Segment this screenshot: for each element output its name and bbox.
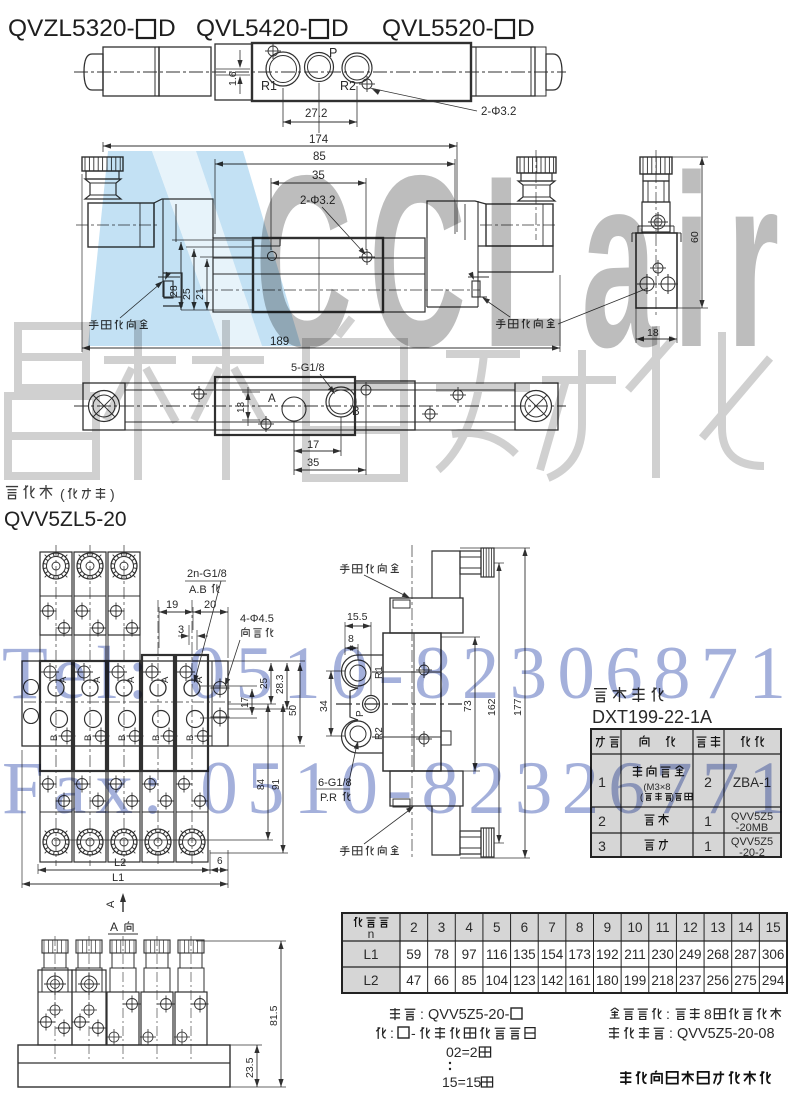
svg-text:189: 189 [270, 336, 289, 348]
svg-text:1.6: 1.6 [227, 71, 239, 86]
svg-text:1: 1 [704, 838, 712, 854]
svg-text:A: A [268, 393, 276, 405]
svg-text:2: 2 [410, 920, 418, 935]
svg-text:-: - [411, 1025, 416, 1041]
svg-text:50: 50 [288, 704, 299, 716]
svg-text:59: 59 [406, 947, 421, 962]
svg-text:174: 174 [309, 134, 329, 146]
svg-text:142: 142 [541, 973, 564, 988]
svg-text:P: P [329, 46, 337, 60]
svg-text:9: 9 [604, 920, 612, 935]
svg-text:A: A [110, 920, 118, 934]
svg-text:D: D [517, 15, 535, 42]
svg-text:2n-G1/8: 2n-G1/8 [187, 568, 227, 580]
svg-text:123: 123 [513, 973, 536, 988]
svg-text:10: 10 [627, 920, 642, 935]
svg-text:15.5: 15.5 [347, 611, 368, 623]
svg-text:QVL5420-: QVL5420- [196, 15, 308, 42]
svg-text:5-G1/8: 5-G1/8 [291, 362, 325, 374]
svg-text:D: D [158, 15, 176, 42]
svg-text::: : [420, 1006, 424, 1022]
svg-text:D: D [331, 15, 349, 42]
svg-text:25: 25 [259, 677, 270, 689]
svg-text:256: 256 [707, 973, 730, 988]
svg-text:12: 12 [683, 920, 698, 935]
svg-text:218: 218 [651, 973, 674, 988]
svg-text:85: 85 [313, 151, 326, 163]
svg-text:211: 211 [624, 947, 646, 962]
svg-text:(: ( [60, 486, 65, 502]
svg-text:): ) [110, 486, 115, 502]
svg-text:-20MB: -20MB [736, 822, 768, 834]
svg-text:6-G1/8: 6-G1/8 [318, 777, 352, 789]
svg-text:275: 275 [734, 973, 757, 988]
svg-text::: : [666, 1006, 670, 1022]
svg-text:1: 1 [704, 813, 712, 829]
svg-text:B: B [151, 735, 162, 741]
svg-text:85: 85 [462, 973, 477, 988]
svg-text:L2: L2 [363, 973, 378, 988]
svg-text:1: 1 [598, 774, 606, 790]
svg-text:8: 8 [704, 1006, 712, 1022]
svg-text:3: 3 [438, 920, 446, 935]
svg-text:8: 8 [576, 920, 584, 935]
svg-text:35: 35 [312, 170, 325, 182]
svg-text:QVV5Z5-20-08: QVV5Z5-20-08 [677, 1026, 775, 1042]
svg-text:13: 13 [236, 401, 247, 413]
svg-text:173: 173 [568, 947, 591, 962]
svg-text:L1: L1 [112, 872, 124, 884]
svg-text:162: 162 [486, 698, 498, 716]
svg-text:ZBA-1: ZBA-1 [733, 775, 771, 790]
svg-text:268: 268 [707, 947, 730, 962]
svg-text:B: B [185, 735, 196, 741]
svg-text:R1: R1 [374, 666, 385, 679]
svg-text:161: 161 [568, 973, 591, 988]
svg-text:20: 20 [204, 599, 216, 611]
svg-text:199: 199 [624, 973, 647, 988]
svg-text:R2: R2 [340, 79, 356, 93]
svg-text:02=2: 02=2 [446, 1044, 478, 1060]
svg-text:P: P [355, 710, 366, 717]
svg-text::: : [390, 1025, 394, 1041]
svg-text:6: 6 [521, 920, 529, 935]
svg-text:QVL5520-: QVL5520- [382, 15, 494, 42]
svg-text:R1: R1 [261, 79, 277, 93]
svg-text:66: 66 [434, 973, 449, 988]
svg-text:QVZL5320-: QVZL5320- [8, 15, 135, 42]
svg-text:78: 78 [434, 947, 449, 962]
svg-text:81.5: 81.5 [268, 1005, 280, 1026]
svg-text:17: 17 [307, 439, 319, 451]
svg-text:): ) [671, 792, 674, 802]
svg-text:-20-2: -20-2 [739, 847, 765, 859]
svg-text:35: 35 [307, 457, 319, 469]
svg-text:180: 180 [596, 973, 619, 988]
svg-text:84: 84 [256, 778, 267, 790]
svg-text:2: 2 [598, 813, 606, 829]
svg-text:23.5: 23.5 [244, 1057, 256, 1078]
svg-text:18: 18 [647, 327, 659, 339]
svg-text:7: 7 [548, 920, 556, 935]
svg-text:34: 34 [318, 700, 330, 712]
svg-text:A: A [58, 676, 69, 683]
svg-text:P.R: P.R [320, 792, 337, 804]
svg-text:QVV5ZL5-20: QVV5ZL5-20 [4, 508, 127, 531]
svg-text:154: 154 [541, 947, 564, 962]
svg-text:97: 97 [462, 947, 477, 962]
svg-text:192: 192 [596, 947, 619, 962]
svg-text:B: B [352, 406, 360, 418]
svg-text:8: 8 [348, 633, 354, 645]
svg-text:QVV5Z5-20-: QVV5Z5-20- [428, 1007, 510, 1023]
svg-text:R2: R2 [374, 727, 385, 740]
svg-text:21: 21 [194, 288, 206, 300]
svg-text:2: 2 [704, 774, 712, 790]
svg-text:14: 14 [738, 920, 754, 935]
svg-text:B: B [49, 735, 60, 741]
svg-text:25: 25 [181, 288, 193, 300]
svg-text:15=15: 15=15 [442, 1074, 482, 1090]
svg-text:B: B [83, 735, 94, 741]
svg-text:B: B [117, 735, 128, 741]
svg-text:3: 3 [598, 838, 606, 854]
svg-text:60: 60 [689, 231, 701, 243]
svg-text:19: 19 [166, 599, 178, 611]
svg-text:306: 306 [762, 947, 785, 962]
svg-text:6: 6 [217, 856, 223, 867]
svg-text:177: 177 [512, 698, 524, 716]
svg-text:A.B: A.B [189, 584, 207, 596]
svg-text:L2: L2 [114, 857, 126, 869]
svg-text:4: 4 [465, 920, 473, 935]
svg-text:27.2: 27.2 [305, 108, 327, 120]
svg-text:104: 104 [485, 973, 508, 988]
svg-text:15: 15 [766, 920, 781, 935]
svg-text:A: A [92, 676, 103, 683]
svg-text:A: A [105, 900, 117, 908]
svg-text:(: ( [640, 792, 643, 802]
svg-text:13: 13 [710, 920, 725, 935]
svg-text:91: 91 [271, 778, 282, 790]
svg-text:28.3: 28.3 [275, 674, 286, 694]
svg-text:L1: L1 [363, 947, 378, 962]
svg-text:n: n [368, 927, 375, 941]
svg-text:DXT199-22-1A: DXT199-22-1A [592, 707, 712, 727]
svg-text:A: A [126, 676, 137, 683]
svg-text:287: 287 [734, 947, 757, 962]
svg-text:5: 5 [493, 920, 501, 935]
svg-text:(M3×8: (M3×8 [643, 782, 670, 793]
svg-text:A: A [160, 676, 171, 683]
svg-text:135: 135 [513, 947, 536, 962]
svg-text:2-Φ3.2: 2-Φ3.2 [481, 106, 516, 118]
svg-text:73: 73 [462, 700, 474, 712]
svg-text:2-Φ3.2: 2-Φ3.2 [300, 195, 335, 207]
svg-text:237: 237 [679, 973, 702, 988]
svg-text:249: 249 [679, 947, 702, 962]
svg-text:294: 294 [762, 973, 785, 988]
svg-text:230: 230 [651, 947, 674, 962]
svg-text:116: 116 [486, 947, 508, 962]
svg-text:4-Φ4.5: 4-Φ4.5 [240, 613, 274, 625]
svg-text:28: 28 [168, 285, 180, 297]
svg-text:11: 11 [656, 920, 670, 935]
svg-text:17: 17 [240, 696, 251, 708]
svg-text:47: 47 [406, 973, 421, 988]
svg-text::: : [669, 1025, 673, 1041]
